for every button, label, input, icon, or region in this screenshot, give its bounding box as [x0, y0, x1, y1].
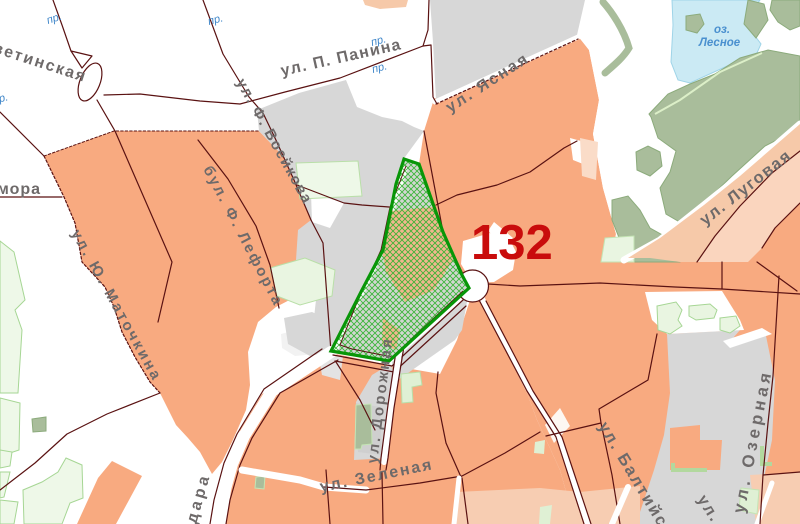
- svg-text:оз.: оз.: [714, 24, 730, 36]
- svg-text:Лесное: Лесное: [698, 37, 741, 49]
- svg-text:мора: мора: [0, 181, 41, 198]
- svg-text:132: 132: [471, 216, 553, 270]
